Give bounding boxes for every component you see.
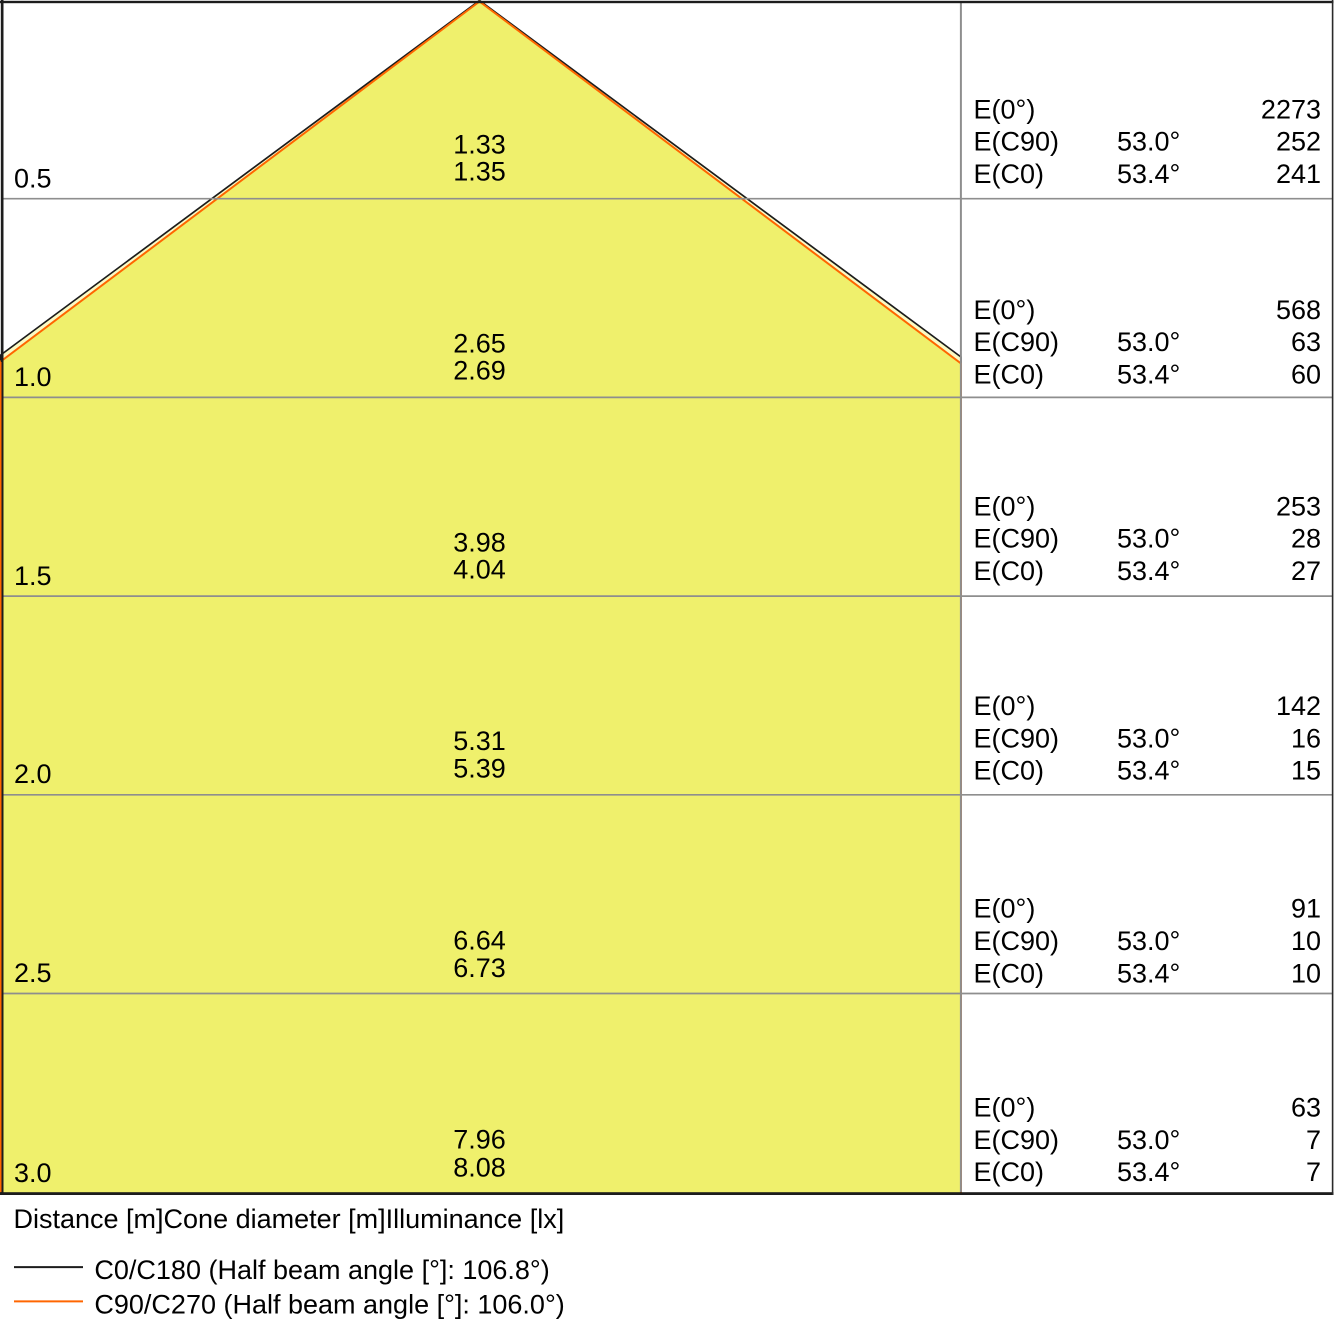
svg-text:142: 142 — [1276, 691, 1321, 721]
svg-text:E(C90): E(C90) — [974, 723, 1060, 753]
svg-text:4.04: 4.04 — [453, 555, 506, 585]
svg-text:2.0: 2.0 — [14, 759, 52, 789]
svg-text:53.4°: 53.4° — [1117, 159, 1180, 189]
svg-text:53.4°: 53.4° — [1117, 958, 1180, 988]
svg-text:7.96: 7.96 — [453, 1124, 506, 1154]
svg-text:53.4°: 53.4° — [1117, 359, 1180, 389]
svg-text:3.98: 3.98 — [453, 527, 506, 557]
svg-text:5.39: 5.39 — [453, 753, 506, 783]
svg-text:7: 7 — [1306, 1157, 1321, 1187]
svg-text:C0/C180 (Half beam angle [°]:: C0/C180 (Half beam angle [°]: 106.8°) — [94, 1255, 549, 1285]
svg-text:53.4°: 53.4° — [1117, 756, 1180, 786]
svg-text:E(C0): E(C0) — [974, 556, 1045, 586]
svg-text:53.4°: 53.4° — [1117, 556, 1180, 586]
svg-text:E(C90): E(C90) — [974, 1125, 1060, 1155]
svg-text:2.69: 2.69 — [453, 356, 506, 386]
svg-text:E(C0): E(C0) — [974, 756, 1045, 786]
svg-text:53.0°: 53.0° — [1117, 1125, 1180, 1155]
svg-text:16: 16 — [1291, 723, 1321, 753]
svg-text:8.08: 8.08 — [453, 1152, 506, 1182]
svg-text:E(C0): E(C0) — [974, 359, 1045, 389]
svg-text:53.0°: 53.0° — [1117, 723, 1180, 753]
svg-text:E(C90): E(C90) — [974, 926, 1060, 956]
svg-text:91: 91 — [1291, 894, 1321, 924]
svg-text:3.0: 3.0 — [14, 1158, 52, 1188]
svg-text:10: 10 — [1291, 958, 1321, 988]
svg-text:E(0°): E(0°) — [974, 491, 1036, 521]
svg-text:10: 10 — [1291, 926, 1321, 956]
svg-text:2.65: 2.65 — [453, 328, 506, 358]
svg-text:E(C90): E(C90) — [974, 127, 1060, 157]
svg-text:E(0°): E(0°) — [974, 94, 1036, 124]
svg-text:E(C0): E(C0) — [974, 958, 1045, 988]
svg-text:6.73: 6.73 — [453, 953, 506, 983]
svg-text:1.33: 1.33 — [453, 130, 506, 160]
svg-text:C90/C270 (Half beam angle [°]:: C90/C270 (Half beam angle [°]: 106.0°) — [94, 1289, 564, 1319]
svg-text:63: 63 — [1291, 327, 1321, 357]
svg-text:241: 241 — [1276, 159, 1321, 189]
svg-text:7: 7 — [1306, 1125, 1321, 1155]
svg-text:27: 27 — [1291, 556, 1321, 586]
svg-text:252: 252 — [1276, 127, 1321, 157]
svg-text:E(0°): E(0°) — [974, 894, 1036, 924]
svg-text:E(0°): E(0°) — [974, 691, 1036, 721]
svg-text:5.31: 5.31 — [453, 726, 506, 756]
svg-text:2273: 2273 — [1261, 94, 1321, 124]
svg-text:6.64: 6.64 — [453, 926, 506, 956]
svg-text:E(0°): E(0°) — [974, 1093, 1036, 1123]
svg-text:1.35: 1.35 — [453, 156, 506, 186]
svg-text:63: 63 — [1291, 1093, 1321, 1123]
svg-text:253: 253 — [1276, 491, 1321, 521]
svg-text:E(C0): E(C0) — [974, 159, 1045, 189]
svg-text:E(0°): E(0°) — [974, 295, 1036, 325]
svg-text:60: 60 — [1291, 359, 1321, 389]
svg-text:568: 568 — [1276, 295, 1321, 325]
svg-text:E(C0): E(C0) — [974, 1157, 1045, 1187]
svg-text:E(C90): E(C90) — [974, 327, 1060, 357]
svg-text:1.0: 1.0 — [14, 362, 52, 392]
svg-text:E(C90): E(C90) — [974, 524, 1060, 554]
svg-text:53.0°: 53.0° — [1117, 127, 1180, 157]
svg-text:53.0°: 53.0° — [1117, 524, 1180, 554]
svg-text:15: 15 — [1291, 756, 1321, 786]
svg-text:53.0°: 53.0° — [1117, 926, 1180, 956]
svg-text:28: 28 — [1291, 524, 1321, 554]
svg-text:1.5: 1.5 — [14, 561, 52, 591]
svg-text:0.5: 0.5 — [14, 163, 52, 193]
svg-text:53.0°: 53.0° — [1117, 327, 1180, 357]
svg-text:2.5: 2.5 — [14, 958, 52, 988]
svg-text:Distance [m]Cone diameter [m]I: Distance [m]Cone diameter [m]Illuminance… — [14, 1204, 565, 1234]
svg-text:53.4°: 53.4° — [1117, 1157, 1180, 1187]
